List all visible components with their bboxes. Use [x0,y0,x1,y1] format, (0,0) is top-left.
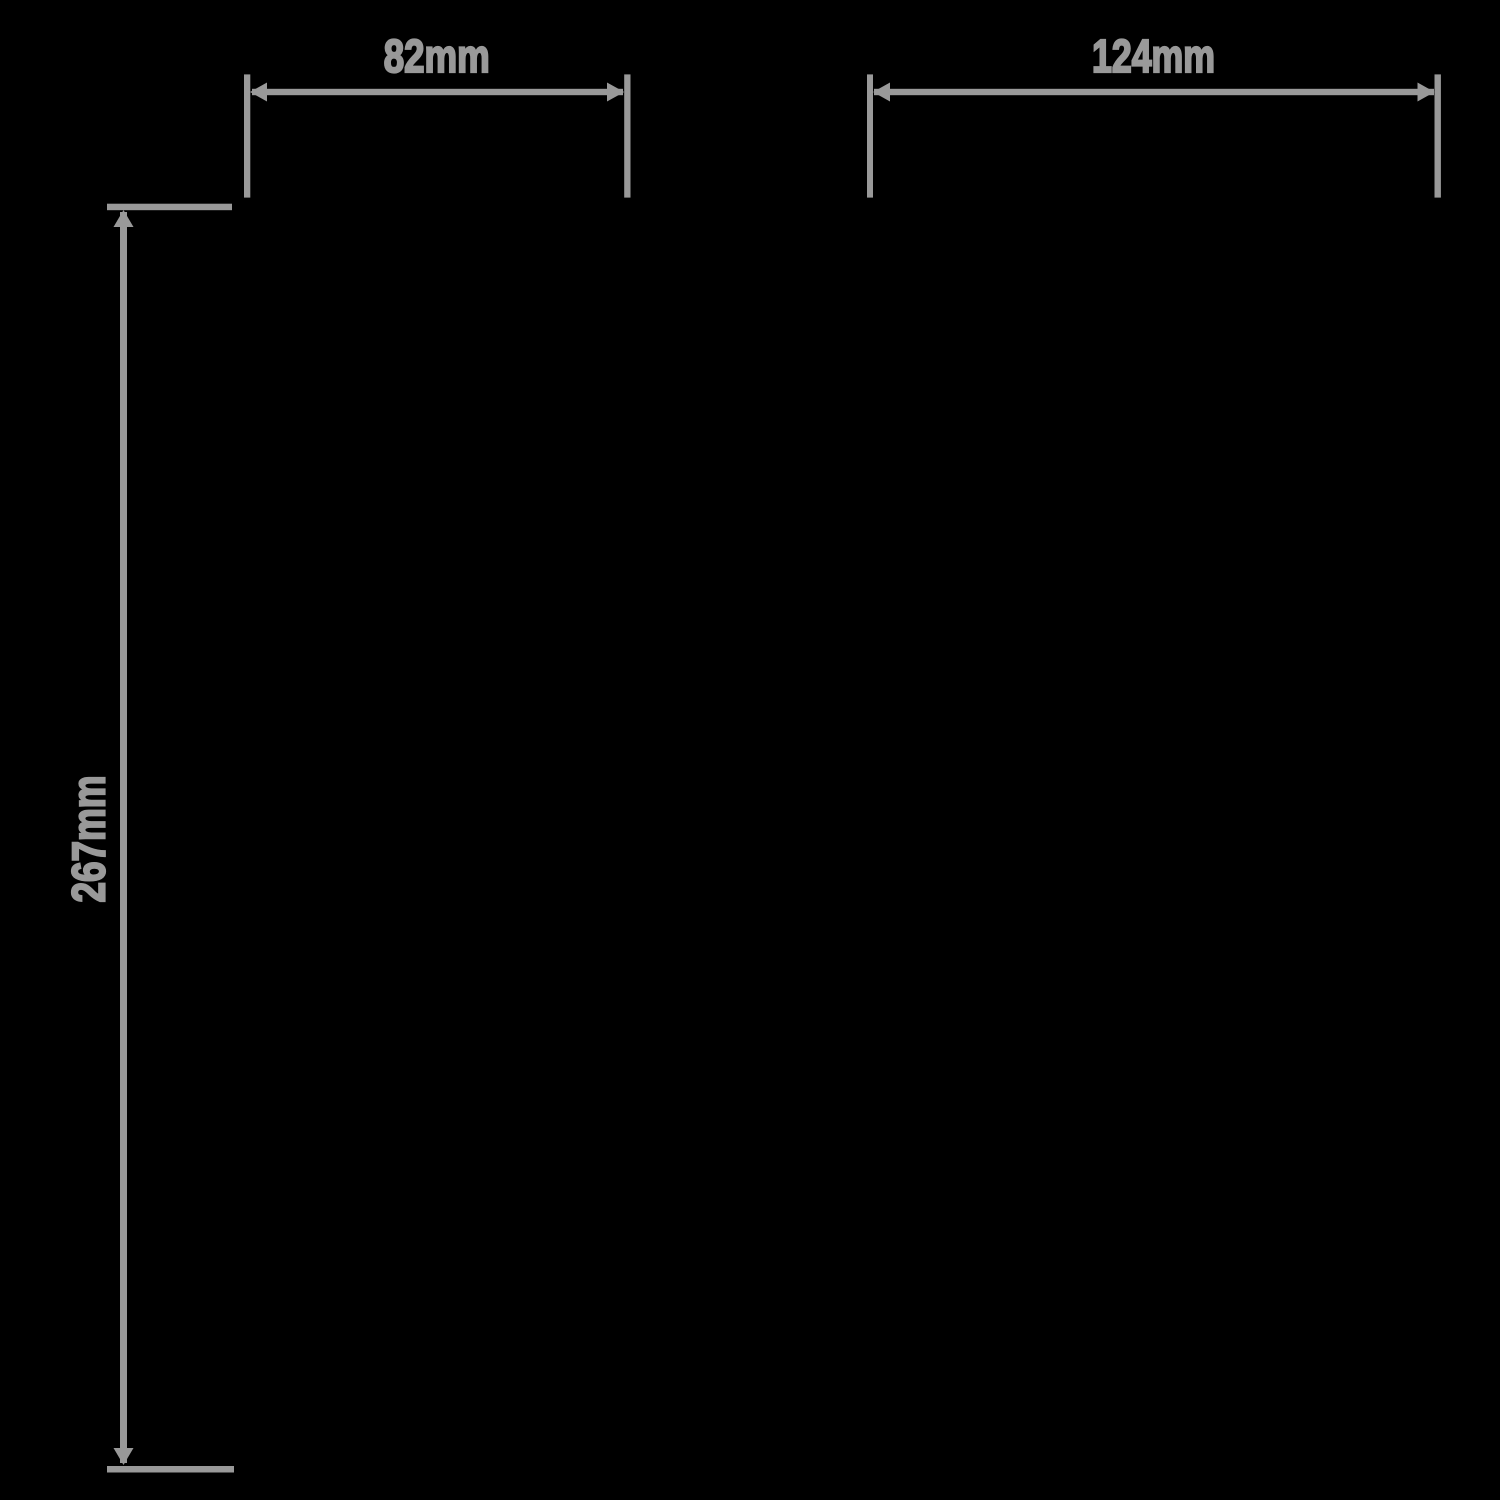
svg-text:267mm: 267mm [62,776,114,903]
svg-text:124mm: 124mm [1092,30,1215,82]
svg-text:82mm: 82mm [384,30,490,82]
